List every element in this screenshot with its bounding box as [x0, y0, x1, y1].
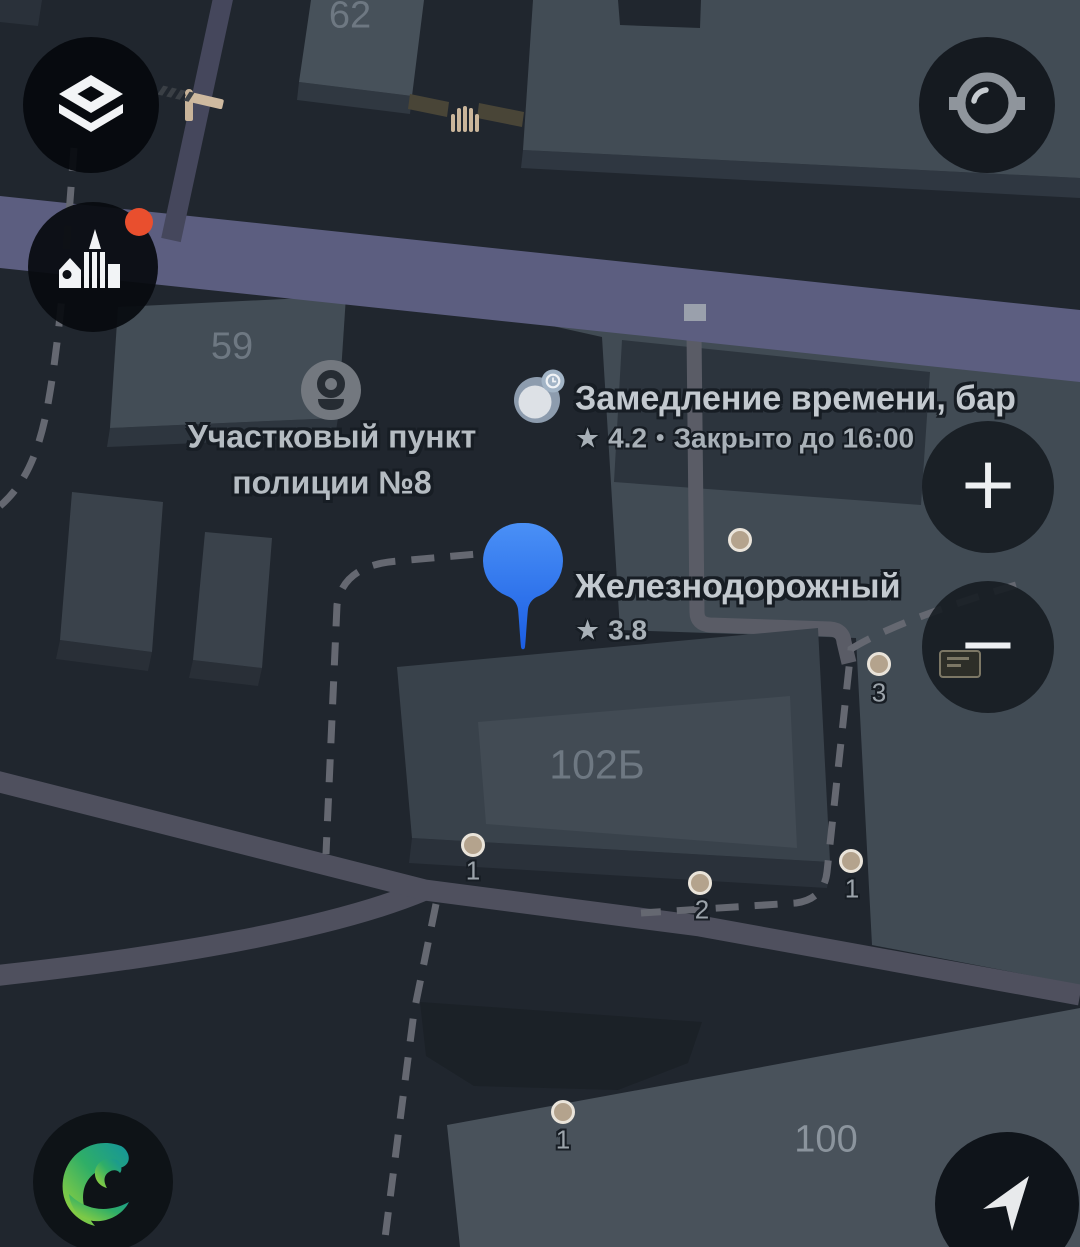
map-canvas[interactable] [0, 0, 1080, 1247]
navigation-arrow-icon [965, 1162, 1049, 1246]
plus-icon: + [958, 447, 1018, 519]
entrance-dot[interactable] [869, 654, 890, 675]
entrance-dot[interactable] [730, 530, 751, 551]
entrance-dot[interactable] [841, 851, 862, 872]
layers-button[interactable] [23, 37, 159, 173]
entrance-dot[interactable] [553, 1102, 574, 1123]
clock-badge-icon [542, 370, 565, 393]
entrance-dot[interactable] [690, 873, 711, 894]
camera-button[interactable] [919, 37, 1055, 173]
logo-button[interactable] [33, 1112, 173, 1247]
city-buildings-icon [51, 225, 135, 309]
kiosk-sign-icon [939, 650, 981, 678]
layers-icon [53, 67, 129, 143]
crosswalk-patch [684, 304, 706, 321]
city-button[interactable] [28, 202, 158, 332]
2gis-logo-icon [55, 1134, 151, 1230]
zoom-out-button[interactable]: − [922, 581, 1054, 713]
zoom-in-button[interactable]: + [922, 421, 1054, 553]
notification-dot [125, 208, 153, 236]
camera-lens-icon [945, 63, 1029, 147]
entrance-dot[interactable] [463, 835, 484, 856]
map-screen: 62 59 102Б 100 Участковый пункт полиции … [0, 0, 1080, 1247]
police-poi-icon[interactable] [301, 360, 361, 420]
